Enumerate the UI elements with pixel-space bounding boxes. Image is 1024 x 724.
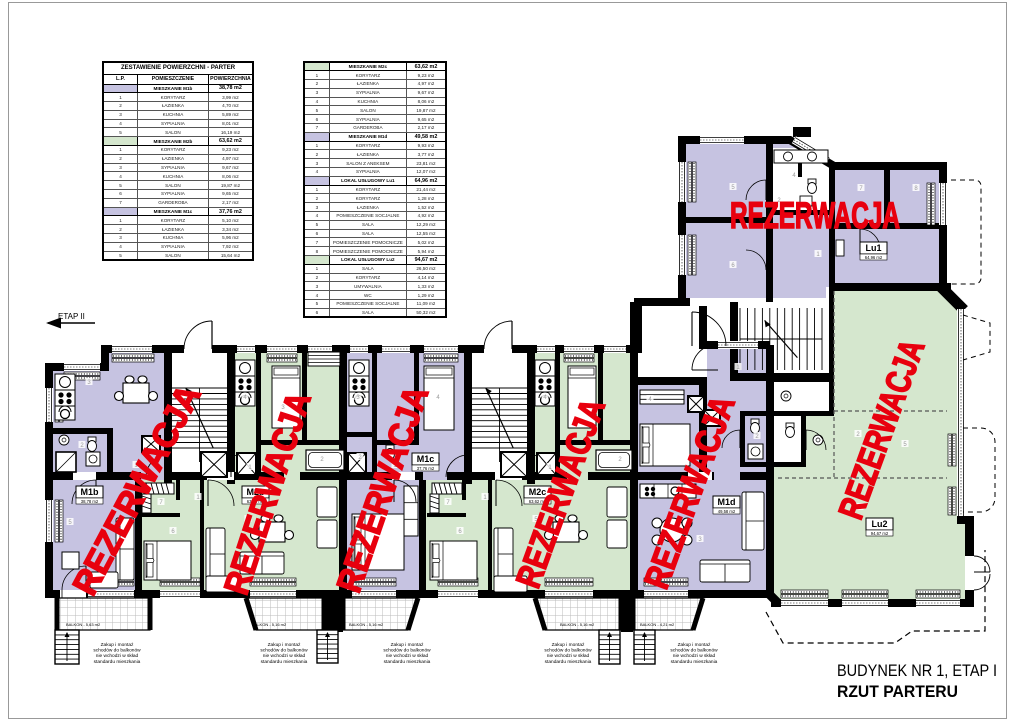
svg-text:nie wchodzi w skład: nie wchodzi w skład [547, 653, 590, 659]
svg-text:nie wchodzi w skład: nie wchodzi w skład [263, 653, 306, 659]
svg-text:nie wchodzi w skład: nie wchodzi w skład [673, 653, 716, 659]
svg-text:Lu1: Lu1 [865, 243, 881, 253]
svg-text:M1c: M1c [417, 454, 435, 464]
svg-text:64,96 m2: 64,96 m2 [865, 255, 883, 260]
svg-text:standardu mieszkania: standardu mieszkania [384, 659, 431, 665]
svg-text:schodów do balkonów: schodów do balkonów [260, 648, 308, 654]
svg-text:BALKON - 5,16 m2: BALKON - 5,16 m2 [349, 622, 384, 627]
svg-text:M1d: M1d [718, 497, 736, 507]
svg-text:49,58 m2: 49,58 m2 [718, 509, 736, 514]
svg-text:schodów do balkonów: schodów do balkonów [544, 648, 592, 654]
svg-text:standardu mieszkania: standardu mieszkania [671, 659, 718, 665]
svg-text:BALKON - 5,63 m2: BALKON - 5,63 m2 [66, 622, 101, 627]
svg-text:M1b: M1b [81, 487, 100, 497]
svg-text:Zakup i montaż: Zakup i montaż [391, 642, 424, 648]
svg-text:BALKON - 5,16 m2: BALKON - 5,16 m2 [252, 622, 287, 627]
svg-text:RZUT PARTERU: RZUT PARTERU [837, 683, 958, 701]
svg-text:schodów do balkonów: schodów do balkonów [670, 648, 718, 654]
svg-text:nie wchodzi w skład: nie wchodzi w skład [96, 653, 139, 659]
svg-text:schodów do balkonów: schodów do balkonów [383, 648, 431, 654]
svg-text:schodów do balkonów: schodów do balkonów [93, 648, 141, 654]
svg-text:BALKON - 4,21 m2: BALKON - 4,21 m2 [640, 622, 675, 627]
svg-text:REZERWACJA: REZERWACJA [730, 195, 900, 236]
svg-text:Zakup i montaż: Zakup i montaż [552, 642, 585, 648]
svg-text:Zakup i montaż: Zakup i montaż [101, 642, 134, 648]
svg-text:BALKON - 5,16 m2: BALKON - 5,16 m2 [560, 622, 595, 627]
svg-text:standardu mieszkania: standardu mieszkania [261, 659, 308, 665]
svg-text:38,78 m2: 38,78 m2 [81, 499, 99, 504]
svg-text:standardu mieszkania: standardu mieszkania [545, 659, 592, 665]
svg-text:37,76 m2: 37,76 m2 [417, 466, 435, 471]
svg-text:94,67 m2: 94,67 m2 [871, 531, 889, 536]
svg-text:nie wchodzi w skład: nie wchodzi w skład [386, 653, 429, 659]
svg-text:BUDYNEK NR 1, ETAP I: BUDYNEK NR 1, ETAP I [837, 662, 997, 680]
svg-text:Lu2: Lu2 [871, 519, 887, 529]
svg-text:ETAP II: ETAP II [58, 312, 85, 321]
svg-text:standardu mieszkania: standardu mieszkania [94, 659, 141, 665]
svg-text:Zakup i montaż: Zakup i montaż [268, 642, 301, 648]
svg-text:Zakup i montaż: Zakup i montaż [678, 642, 711, 648]
